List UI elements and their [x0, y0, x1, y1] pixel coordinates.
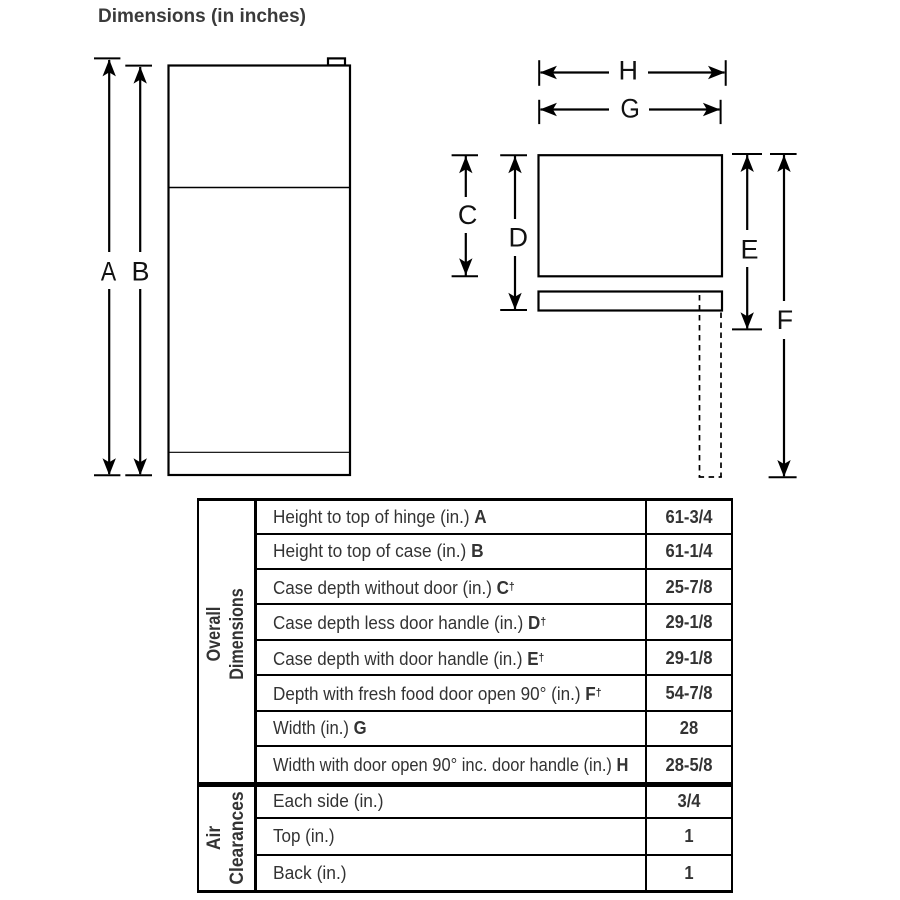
svg-text:F: F: [777, 305, 794, 335]
svg-text:A: A: [101, 257, 117, 287]
svg-text:B: B: [131, 257, 149, 287]
svg-text:D: D: [508, 223, 528, 253]
svg-text:H: H: [618, 56, 638, 86]
svg-text:E: E: [740, 235, 758, 265]
svg-text:C: C: [458, 200, 478, 230]
svg-text:G: G: [620, 93, 640, 124]
